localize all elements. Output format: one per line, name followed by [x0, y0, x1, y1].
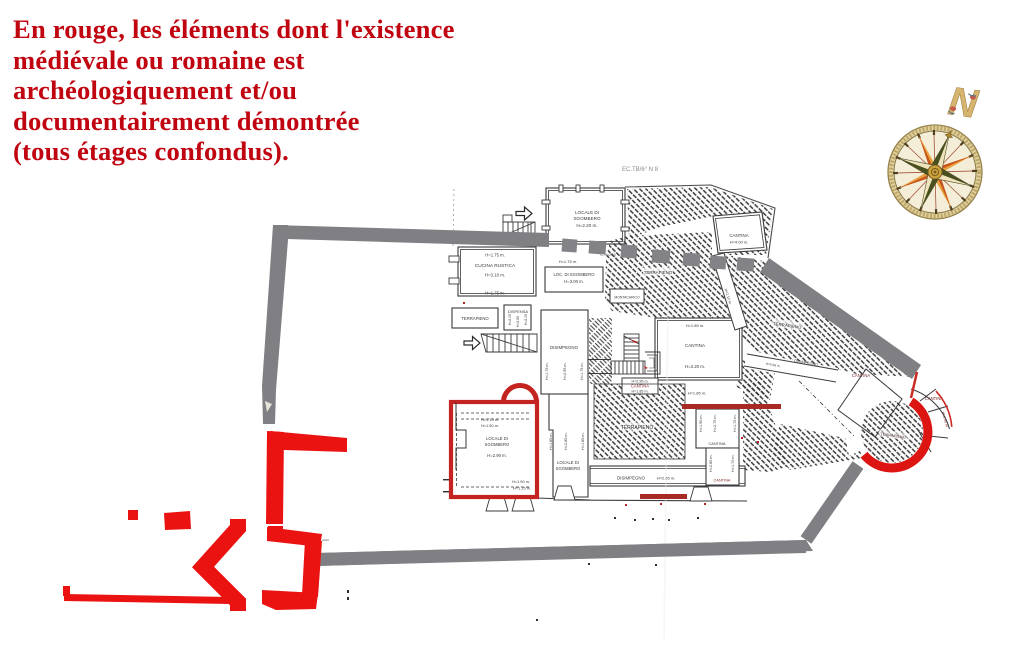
svg-text:H=4.00 m.: H=4.00 m. [730, 240, 749, 245]
svg-text:N: N [946, 79, 982, 127]
svg-text:LOCALE DI: LOCALE DI [486, 436, 508, 441]
svg-text:H=1.90 m.: H=1.90 m. [699, 414, 703, 432]
svg-text:H=2.95 m.: H=2.95 m. [563, 362, 567, 380]
svg-text:SGOMBERO: SGOMBERO [556, 466, 581, 471]
svg-text:H=1.85 m.: H=1.85 m. [686, 323, 705, 328]
svg-text:EC.TB/6° N 8: EC.TB/6° N 8 [622, 167, 659, 173]
svg-text:TERRAPIENO: TERRAPIENO [461, 316, 489, 321]
svg-text:H=3.00 m.: H=3.00 m. [564, 279, 583, 284]
svg-text:H=1.75 m.: H=1.75 m. [485, 253, 504, 258]
svg-text:MONTACARICO: MONTACARICO [614, 296, 640, 300]
svg-text:CANTINA: CANTINA [713, 478, 730, 483]
svg-text:H=1.70 m.: H=1.70 m. [731, 454, 735, 472]
svg-text:H=1.75 m.: H=1.75 m. [559, 259, 578, 264]
svg-text:CANTINA: CANTINA [685, 343, 706, 348]
svg-text:SGOMBERO: SGOMBERO [485, 442, 510, 447]
svg-text:H=1.15 m.: H=1.15 m. [513, 486, 531, 491]
svg-text:H=1.75 m.: H=1.75 m. [545, 362, 549, 380]
svg-text:DISIMPEGNO: DISIMPEGNO [550, 345, 579, 350]
svg-text:TERRAPIENO: TERRAPIENO [644, 270, 673, 275]
svg-text:H=3.20 m.: H=3.20 m. [685, 364, 705, 369]
svg-text:LOC. DI SGOMBERO: LOC. DI SGOMBERO [554, 272, 596, 277]
svg-text:H=1.85 m.: H=1.85 m. [688, 391, 707, 396]
svg-text:H=1.50 m.: H=1.50 m. [481, 423, 499, 428]
svg-text:CANTINA: CANTINA [852, 373, 871, 378]
svg-text:H=1.85 m.: H=1.85 m. [549, 432, 553, 450]
svg-text:H=2.20 m.: H=2.20 m. [576, 223, 597, 228]
svg-text:H=2.80 m.: H=2.80 m. [709, 454, 713, 472]
svg-text:LOCALE DI: LOCALE DI [575, 210, 599, 215]
svg-text:SGOMBERO: SGOMBERO [573, 216, 600, 221]
svg-text:DISIMPEGNO: DISIMPEGNO [617, 476, 646, 481]
svg-text:H=1.75 m.: H=1.75 m. [485, 291, 504, 296]
svg-text:H=2.05: H=2.05 [508, 314, 512, 325]
svg-text:H=2.85: H=2.85 [516, 316, 520, 327]
svg-text:CANTINA: CANTINA [729, 233, 748, 238]
svg-text:H=2.05: H=2.05 [524, 314, 528, 325]
svg-text:LOCALE DI: LOCALE DI [557, 460, 579, 465]
svg-text:DISPENSA: DISPENSA [508, 309, 529, 314]
svg-text:H=1.85 m.: H=1.85 m. [631, 390, 648, 394]
svg-text:H=1.75 m.: H=1.75 m. [580, 362, 584, 380]
svg-text:H=1.90 m.: H=1.90 m. [512, 479, 530, 484]
svg-text:H=3.10 m.: H=3.10 m. [485, 273, 505, 278]
svg-text:H=2.90 m.: H=2.90 m. [487, 453, 506, 458]
svg-text:H=2.75 m.: H=2.75 m. [713, 414, 717, 432]
svg-text:H=2.90 m.: H=2.90 m. [941, 411, 949, 428]
svg-text:H=1.15 m.: H=1.15 m. [481, 417, 499, 422]
svg-text:TERRAPIENO: TERRAPIENO [621, 425, 654, 431]
svg-text:H=1.85 m.: H=1.85 m. [581, 432, 585, 450]
svg-text:H=2.85 m.: H=2.85 m. [564, 432, 568, 450]
svg-text:CANTINA: CANTINA [708, 441, 725, 446]
svg-text:CUCINA RUSTICA: CUCINA RUSTICA [475, 263, 516, 269]
svg-text:H=1.70 m.: H=1.70 m. [733, 414, 737, 432]
